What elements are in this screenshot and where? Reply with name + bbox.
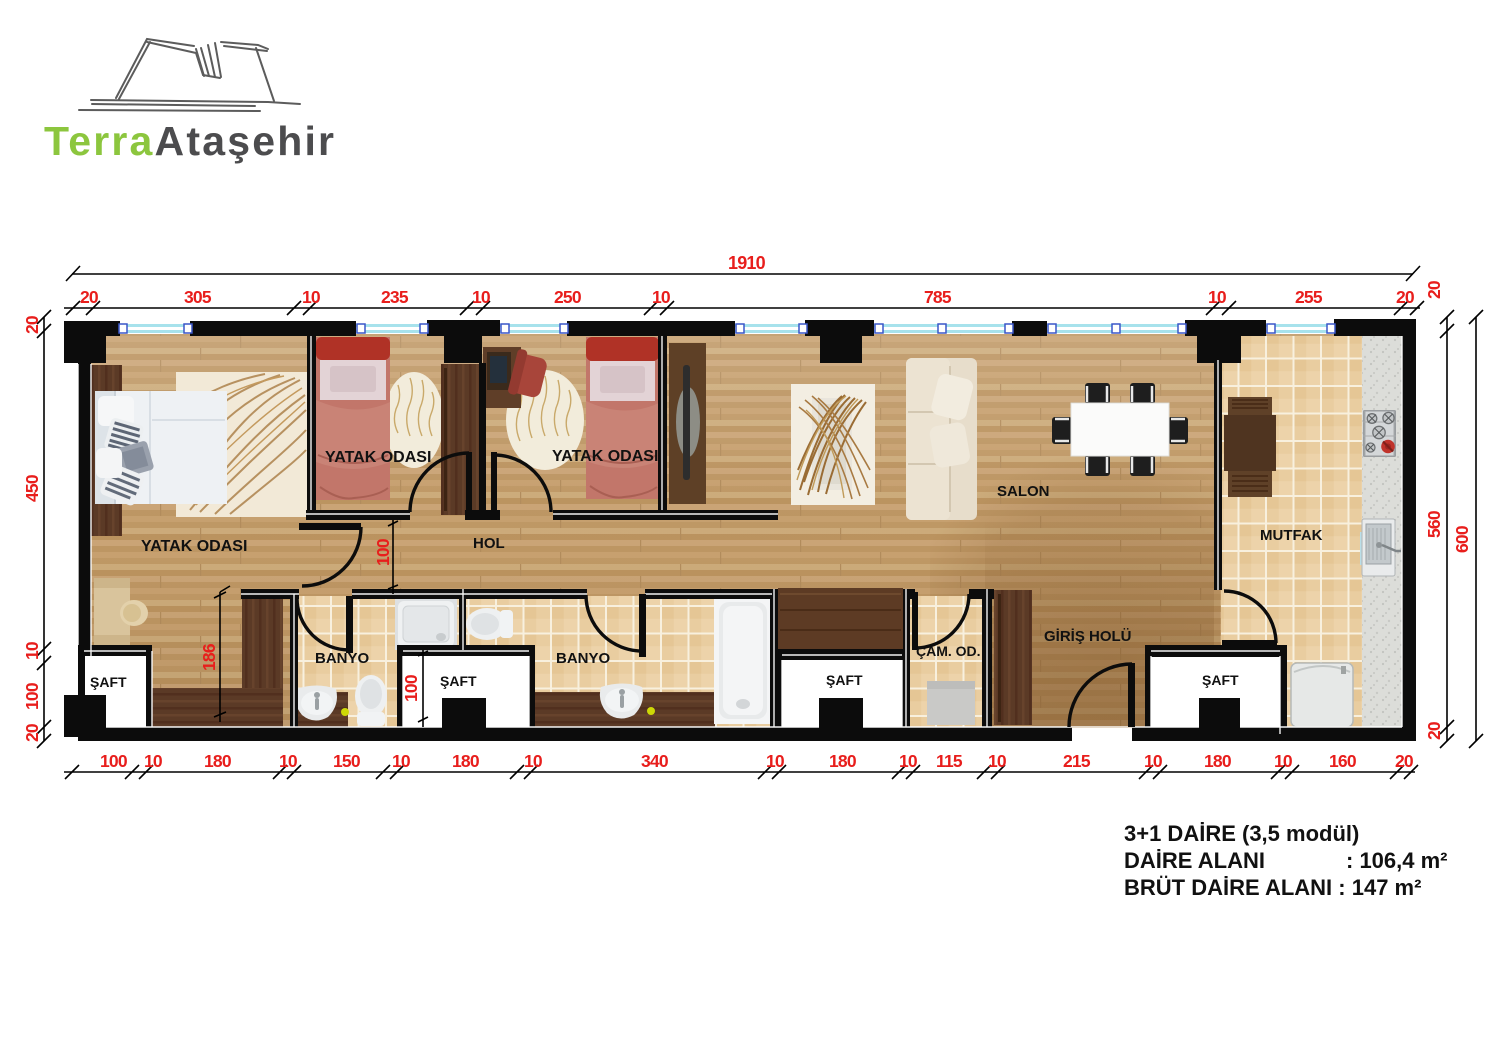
svg-text:10: 10	[302, 287, 321, 307]
svg-text:215: 215	[1063, 751, 1091, 771]
svg-text:450: 450	[22, 474, 42, 502]
svg-text:20: 20	[1396, 287, 1415, 307]
svg-text:BANYO: BANYO	[556, 650, 611, 667]
svg-text:600: 600	[1452, 525, 1472, 553]
svg-text:ÇAM. OD.: ÇAM. OD.	[916, 643, 981, 659]
svg-text:250: 250	[554, 287, 582, 307]
svg-text:180: 180	[1204, 751, 1232, 771]
svg-text:340: 340	[641, 751, 669, 771]
svg-text:ŞAFT: ŞAFT	[1202, 672, 1239, 688]
svg-text:560: 560	[1424, 510, 1444, 538]
svg-text:ŞAFT: ŞAFT	[90, 674, 127, 690]
svg-text:BANYO: BANYO	[315, 650, 370, 667]
svg-text:YATAK ODASI: YATAK ODASI	[325, 449, 431, 466]
svg-text:3+1 DAİRE (3,5 modül): 3+1 DAİRE (3,5 modül)	[1124, 821, 1359, 846]
svg-text:10: 10	[524, 751, 543, 771]
svg-text:10: 10	[472, 287, 491, 307]
svg-text:YATAK ODASI: YATAK ODASI	[141, 538, 247, 555]
svg-text:100: 100	[22, 682, 42, 710]
svg-text:785: 785	[924, 287, 952, 307]
svg-text:: 106,4 m²: : 106,4 m²	[1346, 848, 1448, 873]
svg-text:160: 160	[1329, 751, 1357, 771]
svg-text:10: 10	[392, 751, 411, 771]
svg-text:10: 10	[988, 751, 1007, 771]
svg-text:115: 115	[936, 751, 963, 771]
svg-text:100: 100	[373, 538, 393, 566]
svg-text:150: 150	[333, 751, 361, 771]
svg-text:ŞAFT: ŞAFT	[440, 673, 477, 689]
svg-text:10: 10	[279, 751, 298, 771]
svg-text:10: 10	[652, 287, 671, 307]
svg-text:YATAK ODASI: YATAK ODASI	[552, 448, 658, 465]
svg-text:20: 20	[1424, 721, 1444, 740]
svg-text:10: 10	[766, 751, 785, 771]
svg-text:180: 180	[204, 751, 232, 771]
svg-text:10: 10	[1144, 751, 1163, 771]
svg-text:20: 20	[1395, 751, 1414, 771]
svg-text:MUTFAK: MUTFAK	[1260, 527, 1323, 544]
svg-text:ŞAFT: ŞAFT	[826, 672, 863, 688]
svg-text:GİRİŞ HOLÜ: GİRİŞ HOLÜ	[1044, 628, 1132, 645]
svg-text:235: 235	[381, 287, 409, 307]
svg-text:10: 10	[22, 641, 42, 660]
svg-text:HOL: HOL	[473, 535, 505, 552]
svg-text:10: 10	[1208, 287, 1227, 307]
svg-text:180: 180	[452, 751, 480, 771]
svg-text:DAİRE ALANI: DAİRE ALANI	[1124, 848, 1265, 873]
svg-text:100: 100	[100, 751, 128, 771]
svg-text:20: 20	[1424, 280, 1444, 299]
svg-text:20: 20	[22, 315, 42, 334]
svg-text:255: 255	[1295, 287, 1323, 307]
svg-text:1910: 1910	[728, 253, 766, 273]
svg-text:10: 10	[144, 751, 163, 771]
svg-text:180: 180	[829, 751, 857, 771]
svg-text:20: 20	[22, 723, 42, 742]
svg-text:SALON: SALON	[997, 483, 1050, 500]
svg-text:100: 100	[401, 674, 421, 702]
svg-text:186: 186	[199, 643, 219, 671]
svg-text:BRÜT DAİRE ALANI : 147 m²: BRÜT DAİRE ALANI : 147 m²	[1124, 875, 1421, 900]
svg-text:305: 305	[184, 287, 212, 307]
svg-text:10: 10	[1274, 751, 1293, 771]
svg-text:10: 10	[899, 751, 918, 771]
svg-text:20: 20	[80, 287, 99, 307]
svg-text:TerraAtaşehir: TerraAtaşehir	[44, 118, 336, 164]
